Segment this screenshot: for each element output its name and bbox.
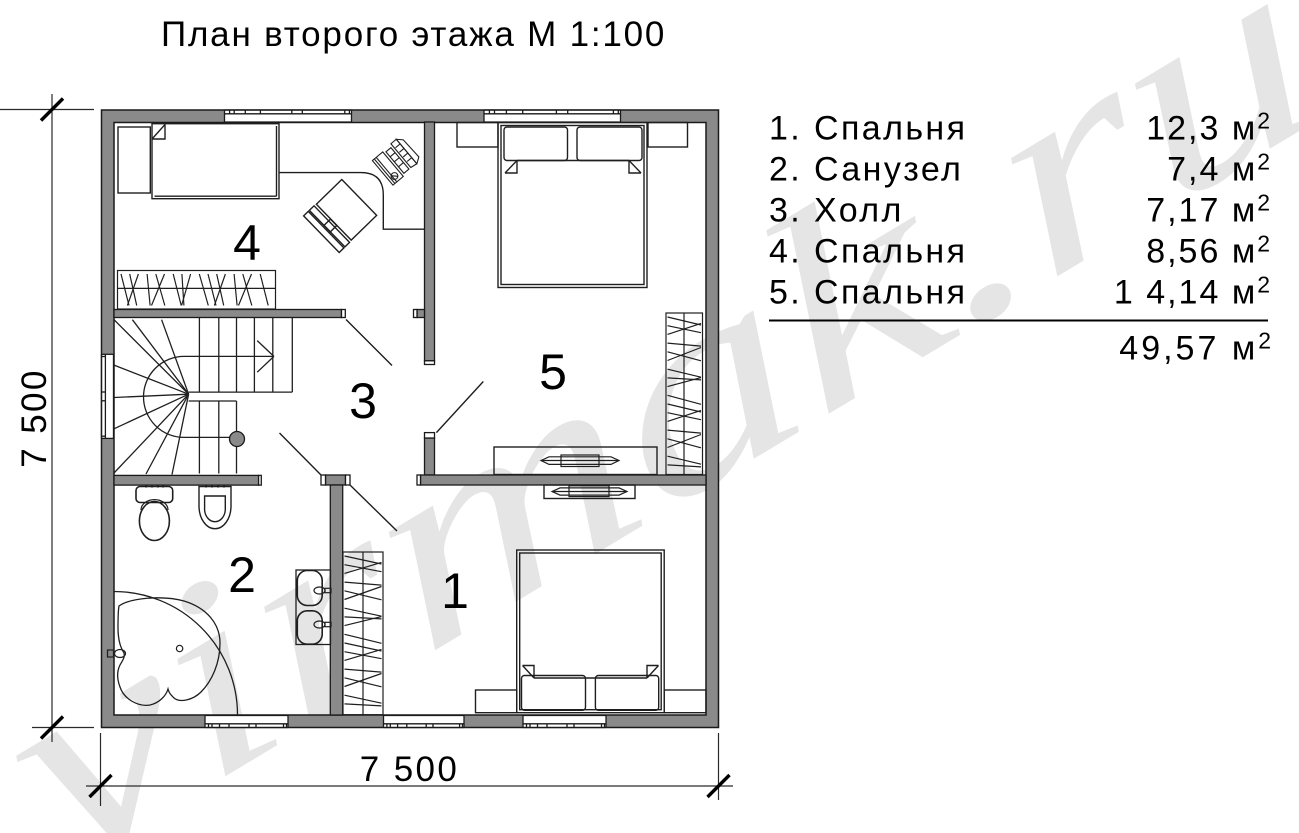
svg-text:12,3 м2: 12,3 м2 (1146, 108, 1272, 148)
svg-text:2: 2 (228, 547, 256, 603)
svg-text:7 500: 7 500 (15, 368, 54, 468)
svg-text:5. Спальня: 5. Спальня (769, 274, 967, 312)
svg-text:3. Холл: 3. Холл (769, 192, 904, 230)
svg-text:7 500: 7 500 (360, 750, 460, 789)
svg-text:5: 5 (539, 344, 567, 400)
svg-text:1. Спальня: 1. Спальня (769, 110, 967, 148)
svg-text:8,56 м2: 8,56 м2 (1146, 231, 1272, 271)
svg-text:7,17 м2: 7,17 м2 (1146, 190, 1272, 230)
svg-text:49,57 м2: 49,57 м2 (1119, 328, 1274, 368)
svg-text:4: 4 (233, 215, 261, 271)
svg-text:План второго этажа М 1:100: План второго этажа М 1:100 (161, 15, 666, 54)
svg-text:2. Санузел: 2. Санузел (769, 151, 963, 189)
svg-text:4. Спальня: 4. Спальня (769, 233, 967, 271)
svg-text:1: 1 (441, 563, 469, 619)
svg-text:1 4,14 м2: 1 4,14 м2 (1114, 272, 1272, 312)
svg-text:3: 3 (349, 373, 377, 429)
svg-text:7,4 м2: 7,4 м2 (1167, 149, 1272, 189)
